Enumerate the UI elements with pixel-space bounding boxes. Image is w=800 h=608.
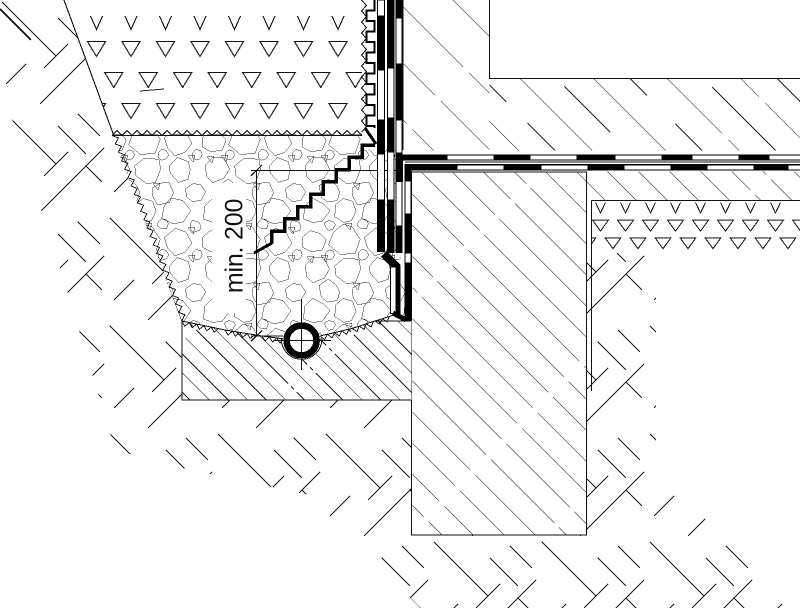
svg-text:min. 200: min. 200	[221, 199, 249, 293]
